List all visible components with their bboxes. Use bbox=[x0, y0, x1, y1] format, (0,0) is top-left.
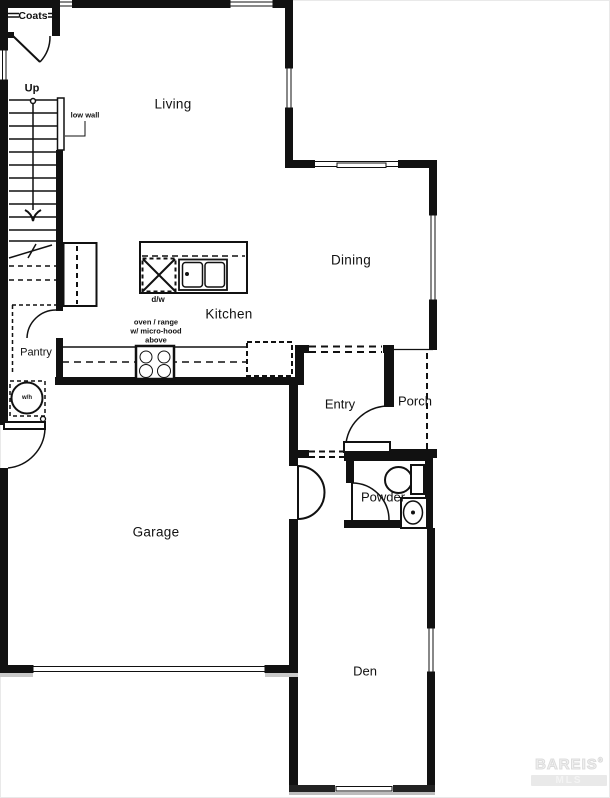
stair-break-line bbox=[9, 244, 52, 258]
dishwasher-label: d/w bbox=[151, 296, 164, 304]
coats-door-leaf bbox=[13, 36, 40, 62]
low-wall-label: low wall bbox=[71, 111, 100, 119]
floor-plan: Coats Up low wall Living Dining Kitchen … bbox=[0, 0, 610, 798]
watermark-line2: MLS bbox=[531, 775, 607, 786]
wall-shadows bbox=[0, 673, 435, 795]
window-dining-right bbox=[429, 215, 437, 300]
window-top-small bbox=[60, 0, 72, 8]
room-label-pantry: Pantry bbox=[20, 348, 52, 359]
water-heater-label: w/h bbox=[22, 395, 32, 401]
range-note: oven / range w/ micro-hood above bbox=[130, 318, 181, 345]
range-note-line2: w/ micro-hood bbox=[130, 327, 181, 336]
stair-dashed-treads bbox=[9, 266, 57, 280]
window-living-left bbox=[0, 50, 8, 80]
range bbox=[136, 346, 174, 379]
room-label-den: Den bbox=[353, 665, 377, 678]
window-den-right bbox=[427, 628, 435, 672]
pantry-door-arc bbox=[27, 310, 56, 338]
watermark-reg-mark: ® bbox=[598, 758, 603, 765]
doors bbox=[4, 406, 390, 520]
closet-under-stairs bbox=[64, 243, 97, 306]
opening-dining-entry bbox=[309, 347, 382, 353]
bareis-mls-watermark: BAREIS® MLS bbox=[531, 756, 607, 786]
range-note-line1: oven / range bbox=[130, 318, 181, 327]
room-label-entry: Entry bbox=[325, 398, 355, 411]
window-living-right bbox=[285, 68, 293, 108]
room-label-kitchen: Kitchen bbox=[205, 307, 252, 321]
room-label-coats: Coats bbox=[18, 11, 47, 22]
pantry-shelves bbox=[12, 305, 60, 375]
garage-door bbox=[33, 665, 265, 673]
window-living-top bbox=[230, 0, 273, 8]
coats-door-arc bbox=[40, 36, 50, 62]
room-label-porch: Porch bbox=[398, 395, 432, 408]
window-den-bottom bbox=[335, 785, 393, 792]
garage-hall-door bbox=[298, 466, 325, 519]
low-wall bbox=[58, 98, 65, 150]
watermark-line1: BAREIS bbox=[535, 756, 598, 773]
window-dining-top bbox=[315, 160, 398, 168]
front-door bbox=[344, 406, 390, 452]
range-note-line3: above bbox=[130, 336, 181, 345]
room-label-dining: Dining bbox=[331, 253, 371, 267]
refrigerator bbox=[247, 342, 292, 376]
low-wall-leader bbox=[65, 121, 85, 136]
room-label-garage: Garage bbox=[133, 525, 180, 539]
kitchen-island bbox=[140, 242, 247, 293]
garage-service-door bbox=[4, 417, 46, 469]
stair-arrow-head bbox=[25, 210, 41, 221]
stairs-up-label: Up bbox=[25, 84, 40, 95]
room-label-living: Living bbox=[154, 97, 191, 111]
room-label-powder: Powder bbox=[361, 491, 405, 504]
floor-plan-drawing bbox=[0, 0, 610, 798]
stair-start-circle bbox=[31, 99, 36, 104]
opening-entry-hall bbox=[309, 452, 344, 458]
